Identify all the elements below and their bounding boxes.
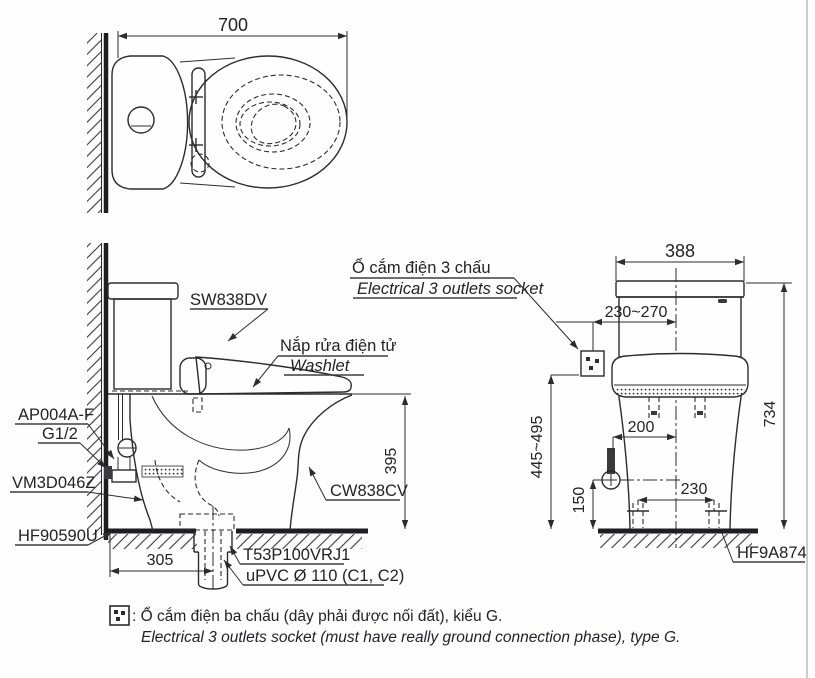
floor-bolts [627, 503, 727, 528]
tank-plan [112, 56, 188, 189]
thread-size-label: G1/2 [42, 425, 78, 443]
seat-base-band [615, 387, 745, 396]
front-view: 388 230~270 445~495 200 150 [350, 241, 807, 562]
flange-code-label: HF90590U [18, 527, 98, 545]
flush-button-front [718, 299, 727, 303]
supply-code-label: AP004A-F [18, 406, 94, 424]
dim-150: 150 [571, 480, 602, 529]
socket-height-dim: 445~495 [529, 416, 546, 479]
top-width-dim: 700 [218, 15, 248, 35]
valve-code-label: VM3D046Z [12, 474, 95, 492]
total-height-dim: 734 [762, 401, 779, 428]
bowl-profile [130, 394, 352, 531]
socket-label-en: Electrical 3 outlets socket [357, 280, 545, 298]
tank-side [108, 283, 188, 391]
footnote-en: Electrical 3 outlets socket (must have r… [141, 629, 680, 646]
dim-700: 700 [118, 15, 347, 118]
socket-label-vi: Ổ cắm điện 3 chấu [352, 258, 491, 277]
dim-734: 734 [746, 283, 792, 529]
socket-callout: Ổ cắm điện 3 chấu Electrical 3 outlets s… [350, 258, 578, 349]
rough-in-dim: 305 [147, 552, 174, 569]
dim-388: 388 [616, 241, 744, 281]
footnote: : Ổ cắm điện ba chấu (dây phải được nối … [110, 606, 680, 646]
side-view: 395 305 SW838DV Nắp rửa điện tử Washlet … [10, 243, 411, 592]
dim-395: 395 [383, 396, 405, 529]
flush-valve-seal [142, 466, 183, 477]
footnote-vi: : Ổ cắm điện ba chấu (dây phải được nối … [132, 607, 502, 625]
wall-hatch [87, 33, 101, 213]
tank-width-dim: 388 [665, 241, 695, 261]
water-surface-plan [251, 104, 296, 143]
bolt-spacing-dim: 230 [681, 481, 708, 498]
rim-height-dim: 395 [383, 448, 400, 475]
toilet-installation-drawing: 700 [0, 0, 815, 678]
bowl-left-edge [619, 397, 630, 529]
washlet-label-en: Washlet [290, 357, 351, 375]
socket-offset-dim: 230~270 [605, 304, 668, 321]
power-socket-icon [581, 351, 604, 376]
seal-code-label: HF9A874 [737, 544, 807, 562]
supply-valve-front [597, 448, 683, 489]
top-view: 700 [87, 15, 347, 213]
bowl-right-edge [730, 397, 741, 529]
power-socket-icon [110, 606, 129, 625]
washlet-label-vi: Nắp rửa điện tử [280, 336, 397, 355]
pipe-spec-label: uPVC Ø 110 (C1, C2) [246, 567, 404, 585]
flush-button-plan [128, 107, 154, 133]
bowl-front-curve [290, 395, 352, 531]
seat-bolts [649, 397, 705, 419]
drain-code-label: T53P100VRJ1 [243, 546, 350, 564]
supply-height-dim: 150 [571, 487, 588, 514]
tank-code-label: SW838DV [190, 291, 267, 309]
supply-offset-dim: 200 [628, 419, 655, 436]
bowl-code-label: CW838CV [330, 482, 408, 500]
